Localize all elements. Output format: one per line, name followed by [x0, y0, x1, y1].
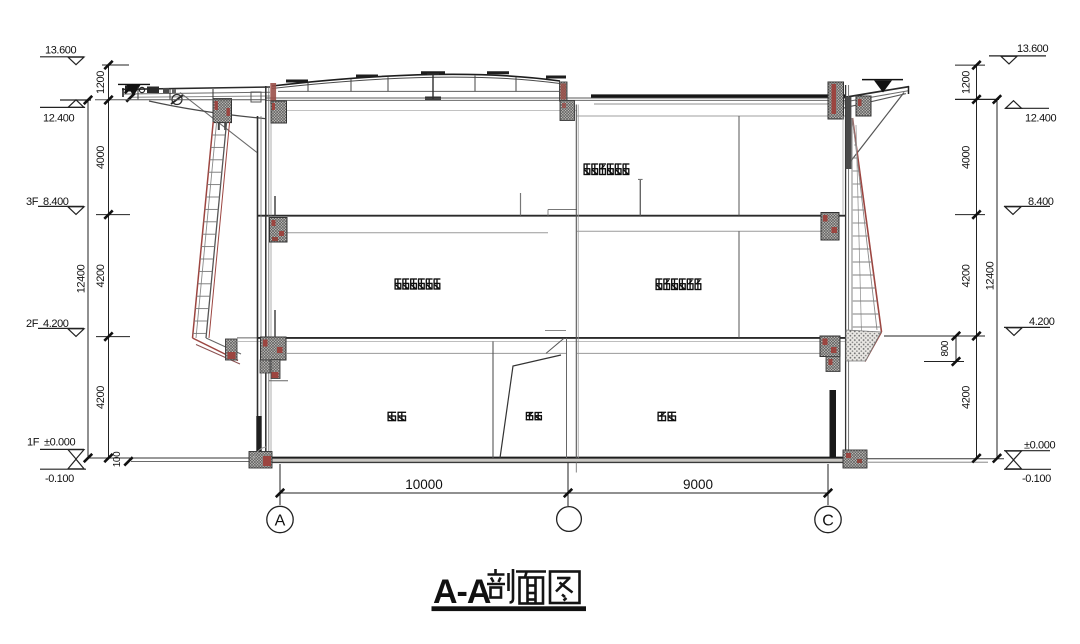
- svg-text:12.400: 12.400: [1025, 113, 1057, 125]
- svg-text:800: 800: [940, 340, 951, 356]
- svg-text:A: A: [275, 513, 286, 530]
- svg-text:4200: 4200: [961, 264, 973, 287]
- svg-text:4200: 4200: [95, 264, 107, 287]
- svg-text:4.200: 4.200: [1029, 316, 1055, 328]
- svg-text:3F: 3F: [26, 196, 39, 208]
- svg-text:4200: 4200: [95, 386, 107, 409]
- svg-text:9000: 9000: [683, 477, 713, 492]
- svg-text:1200: 1200: [95, 71, 107, 94]
- svg-text:12400: 12400: [985, 261, 997, 290]
- svg-text:2F: 2F: [26, 318, 39, 330]
- svg-text:10000: 10000: [405, 477, 443, 492]
- svg-text:±0.000: ±0.000: [44, 437, 75, 449]
- svg-text:4200: 4200: [961, 386, 973, 409]
- svg-text:13.600: 13.600: [1017, 43, 1049, 55]
- svg-text:1200: 1200: [961, 71, 973, 94]
- svg-text:4000: 4000: [961, 146, 973, 169]
- svg-text:-0.100: -0.100: [45, 473, 74, 485]
- svg-text:-0.100: -0.100: [1022, 473, 1051, 485]
- svg-text:±0.000: ±0.000: [1024, 440, 1055, 452]
- svg-text:100: 100: [112, 451, 123, 467]
- svg-text:A-A: A-A: [433, 573, 491, 611]
- svg-text:13.600: 13.600: [45, 45, 77, 57]
- svg-text:1F: 1F: [27, 437, 40, 449]
- svg-text:12400: 12400: [76, 264, 88, 293]
- svg-text:C: C: [822, 513, 834, 530]
- svg-text:4000: 4000: [95, 146, 107, 169]
- svg-text:12.400: 12.400: [43, 113, 75, 125]
